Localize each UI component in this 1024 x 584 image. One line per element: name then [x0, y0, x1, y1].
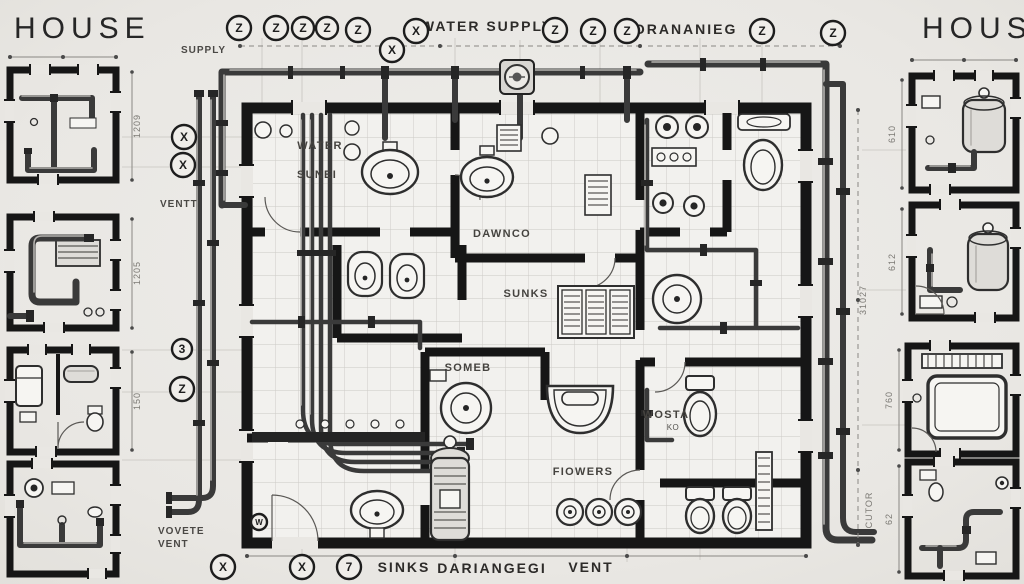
washer-dials	[557, 499, 641, 525]
svg-text:X: X	[388, 43, 396, 57]
valve-dial	[344, 144, 360, 160]
svg-text:Z: Z	[299, 21, 306, 35]
svg-text:Z: Z	[323, 21, 330, 35]
label-dawnco: DAWNCO	[473, 228, 531, 240]
label-wosta-sub: KO	[667, 423, 680, 432]
label-sunks: SUNKS	[503, 288, 548, 300]
left-house-title: HOUSE	[14, 12, 151, 45]
right-dim-1: 610	[887, 125, 897, 143]
dial-dawnco	[542, 128, 558, 144]
svg-text:X: X	[180, 130, 188, 144]
label-sinks: SINKS	[378, 559, 431, 575]
ref-marker-top-11: Z	[821, 21, 845, 45]
ref-marker-top-4: Z	[346, 18, 370, 42]
ref-marker-left-3: Z	[170, 377, 194, 401]
label-vent-bottom-left: VENT	[158, 539, 189, 550]
floor-grate	[558, 286, 634, 338]
ref-marker-bottom-1: X	[290, 555, 314, 579]
svg-text:X: X	[298, 560, 306, 574]
label-wosta: WOSTA	[643, 409, 690, 421]
ref-marker-top-1: Z	[264, 16, 288, 40]
water-heater	[431, 436, 469, 540]
wall-grate-small	[497, 125, 521, 151]
label-drainage-top: DRANANIEG	[635, 21, 738, 37]
label-vent-bottom: VENT	[568, 559, 613, 575]
toilet-top-right	[744, 140, 782, 190]
svg-text:Z: Z	[623, 24, 630, 38]
vanity-top-right	[738, 114, 790, 130]
svg-text:X: X	[219, 560, 227, 574]
svg-text:Z: Z	[354, 23, 361, 37]
ref-marker-top-0: Z	[227, 16, 251, 40]
ref-marker-top-3: Z	[316, 17, 338, 39]
toilet-wosta	[684, 376, 716, 436]
blueprint-canvas: HOUSE 1209	[0, 0, 1024, 584]
right-dim-3: 760	[884, 391, 894, 409]
svg-text:3: 3	[179, 342, 186, 356]
svg-text:Z: Z	[829, 26, 836, 40]
main-plan	[166, 58, 874, 558]
ref-marker-top-10: Z	[750, 19, 774, 43]
ref-marker-top-7: Z	[543, 18, 567, 42]
label-water: WATER	[297, 140, 342, 152]
ref-marker-left-0: X	[172, 125, 196, 149]
ref-marker-bottom-0: X	[211, 555, 235, 579]
svg-text:Z: Z	[235, 21, 242, 35]
svg-text:X: X	[412, 24, 420, 38]
svg-text:7: 7	[346, 560, 353, 574]
shield-marker: W	[251, 514, 267, 530]
svg-text:Z: Z	[178, 382, 185, 396]
ref-marker-top-6: X	[404, 19, 428, 43]
label-dim-right-upper: 31027	[858, 285, 868, 315]
left-dim-3: 150	[132, 392, 142, 410]
label-sunei: SUNEI	[297, 169, 337, 181]
left-dim-1: 1209	[132, 114, 142, 138]
label-water-supply: WATER SUPPLY	[421, 18, 553, 34]
label-supply-small: SUPPLY	[181, 45, 226, 56]
label-drainage-bottom: DARIANGEGI	[437, 560, 546, 576]
water-meter	[500, 60, 534, 94]
label-vovete: VOVETE	[158, 526, 205, 537]
label-fiowers: FIOWERS	[553, 466, 613, 478]
right-dim-4: 62	[884, 513, 894, 525]
label-vent-left: VENTT	[160, 199, 198, 210]
svg-text:X: X	[179, 158, 187, 172]
svg-text:Z: Z	[272, 21, 279, 35]
right-dim-2: 612	[887, 253, 897, 271]
right-house-title: HOUSE	[922, 12, 1024, 45]
ref-marker-top-9: Z	[615, 19, 639, 43]
svg-text:Z: Z	[551, 23, 558, 37]
label-someb: SOMEB	[445, 362, 492, 374]
left-dim-2: 1205	[132, 261, 142, 285]
ref-marker-left-2: 3	[172, 339, 192, 359]
ref-marker-top-8: Z	[581, 19, 605, 43]
ref-marker-bottom-2: 7	[337, 555, 361, 579]
radiator-slim	[756, 452, 772, 530]
svg-text:W: W	[255, 518, 263, 527]
label-dim-right-lower: CUTOR	[864, 492, 874, 529]
ref-marker-left-1: X	[171, 153, 195, 177]
sink-right-middle	[653, 275, 701, 323]
svg-text:Z: Z	[589, 24, 596, 38]
ref-marker-top-2: Z	[292, 17, 314, 39]
wall-grate-tall	[585, 175, 611, 215]
ref-marker-top-5: X	[380, 38, 404, 62]
svg-text:Z: Z	[758, 24, 765, 38]
